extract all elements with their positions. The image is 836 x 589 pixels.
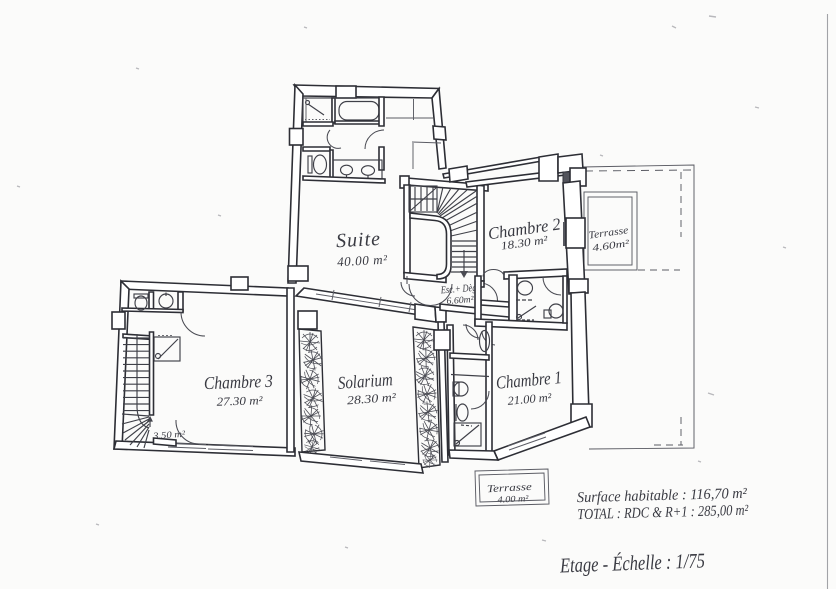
svg-text:Suite: Suite bbox=[335, 228, 380, 252]
svg-text:4.00 m²: 4.00 m² bbox=[497, 493, 529, 505]
svg-text:Etage - Échelle : 1/75: Etage - Échelle : 1/75 bbox=[559, 548, 706, 577]
svg-text:Chambre 3: Chambre 3 bbox=[204, 371, 274, 393]
svg-text:Solarium: Solarium bbox=[337, 369, 393, 393]
svg-text:40.00 m²: 40.00 m² bbox=[337, 252, 389, 270]
svg-text:27.30 m²: 27.30 m² bbox=[216, 393, 263, 409]
